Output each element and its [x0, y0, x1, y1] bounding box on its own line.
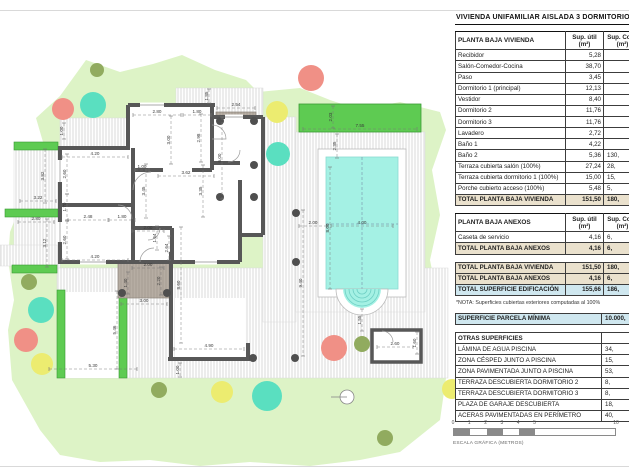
table-cell — [604, 61, 629, 72]
dim-label: 2.35 — [332, 141, 337, 150]
column — [291, 354, 299, 362]
tree — [52, 98, 74, 120]
table-row: PLANTA BAJA ANEXOSSup. útil (m²)Sup. Con… — [456, 214, 629, 232]
planter-strip — [12, 265, 57, 273]
table-cell: 6, — [604, 232, 629, 243]
table-row: TERRAZA DESCUBIERTA DORMITORIO 38, — [456, 388, 629, 399]
table-row: Baño 25,36130, — [456, 150, 629, 161]
house-room — [128, 105, 215, 170]
table-cell — [604, 50, 629, 61]
dim-label: 1.70 — [62, 202, 67, 211]
table-row: LÁMINA DE AGUA PISCINA34, — [456, 344, 629, 355]
dim-label: 3.00 — [166, 135, 171, 144]
table-cell — [604, 105, 629, 116]
scale-tick: 4 — [517, 420, 520, 426]
dim-label: 2.48 — [84, 214, 93, 219]
dim-label: 4.00 — [358, 220, 367, 225]
table-cell: LÁMINA DE AGUA PISCINA — [456, 344, 602, 355]
dim-label: 1.60 — [412, 338, 417, 347]
table-cell: 18, — [602, 399, 629, 410]
table-cell: Lavadero — [456, 128, 566, 139]
table-cell: 130, — [604, 150, 629, 161]
table-cell: 6, — [604, 273, 629, 284]
table-cell: 34, — [602, 344, 629, 355]
data-table: OTRAS SUPERFICIESLÁMINA DE AGUA PISCINA3… — [455, 332, 629, 422]
table-row: Dormitorio 211,76 — [456, 105, 629, 116]
scale-tick: 3 — [501, 420, 504, 426]
table-cell: 15, — [602, 355, 629, 366]
dim-label: 4.20 — [91, 151, 100, 156]
scale-tick: 5 — [533, 420, 536, 426]
dim-label: 4.20 — [91, 254, 100, 259]
tree — [252, 381, 282, 411]
table-cell: SUPERFICIE PARCELA MÍNIMA — [456, 313, 602, 324]
column — [292, 258, 300, 266]
table-cell: 4,16 — [566, 243, 604, 254]
scale-bar — [453, 428, 616, 436]
scale-segment — [519, 429, 535, 435]
table-cell: ZONA PAVIMENTADA JUNTO A PISCINA — [456, 366, 602, 377]
table-row: PLAZA DE GARAJE DESCUBIERTA18, — [456, 399, 629, 410]
column — [250, 117, 258, 125]
table-cell: TOTAL PLANTA BAJA VIVIENDA — [456, 262, 566, 273]
column — [292, 209, 300, 217]
table-cell: Recibidor — [456, 50, 566, 61]
table-cell: TOTAL PLANTA BAJA VIVIENDA — [456, 194, 566, 205]
table-row: Terraza cubierta dormitorio 1 (100%)15,0… — [456, 172, 629, 183]
dim-label: 2.03 — [328, 112, 333, 121]
table-cell: 38,70 — [566, 61, 604, 72]
column — [163, 289, 171, 297]
table-row: Caseta de servicio4,166, — [456, 232, 629, 243]
table-cell: Sup. útil (m²) — [566, 214, 604, 232]
table-cell: 3,45 — [566, 72, 604, 83]
tree — [14, 328, 38, 352]
scale-tick: 1 — [468, 420, 471, 426]
table-row: PLANTA BAJA VIVIENDASup. útil (m²)Sup. C… — [456, 32, 629, 50]
table-cell: 11,76 — [566, 117, 604, 128]
planter-strip — [57, 290, 65, 378]
table-cell: 6, — [604, 243, 629, 254]
garage-court — [175, 298, 245, 359]
dim-label: 1.00 — [175, 365, 180, 374]
table-cell — [604, 94, 629, 105]
scale-segment — [487, 429, 503, 435]
table-row: Paso3,45 — [456, 72, 629, 83]
planter-strip — [119, 295, 127, 378]
table-cell: 4,22 — [566, 139, 604, 150]
dim-label: 1.40 — [123, 278, 128, 287]
dim-label: 2.60 — [62, 235, 67, 244]
column — [118, 289, 126, 297]
planter-strip — [14, 142, 58, 150]
house-room — [133, 170, 240, 262]
tree — [211, 381, 233, 403]
table-cell: Baño 2 — [456, 150, 566, 161]
table-row: Vestidor8,40 — [456, 94, 629, 105]
data-table: SUPERFICIE PARCELA MÍNIMA10.000, — [455, 313, 629, 325]
column — [250, 161, 258, 169]
table-cell: TOTAL SUPERFICIE EDIFICACIÓN — [456, 284, 566, 295]
table-cell: Terraza cubierta salón (100%) — [456, 161, 566, 172]
table-cell: PLANTA BAJA ANEXOS — [456, 214, 566, 232]
table-cell: Sup. Cons (m²) — [604, 214, 629, 232]
table-cell: Porche cubierto acceso (100%) — [456, 183, 566, 194]
dim-label: 5.46 — [112, 325, 117, 334]
dim-label: 8.00 — [325, 223, 330, 232]
table-cell: 8, — [602, 388, 629, 399]
dim-label: 9.40 — [298, 278, 303, 287]
tree — [80, 92, 106, 118]
table-cell: PLANTA BAJA VIVIENDA — [456, 32, 566, 50]
dim-label: 5.30 — [89, 363, 98, 368]
drawing-sheet: 1.002.801.803.002.981.852.546.004.202.60… — [0, 0, 629, 476]
table-row: TOTAL SUPERFICIE EDIFICACIÓN155,66186, — [456, 284, 629, 295]
table-cell: Salón-Comedor-Cocina — [456, 61, 566, 72]
table-cell: OTRAS SUPERFICIES — [456, 333, 602, 344]
tree — [298, 65, 324, 91]
table-cell: 12,13 — [566, 83, 604, 94]
data-table: PLANTA BAJA VIVIENDASup. útil (m²)Sup. C… — [455, 31, 629, 206]
dim-label: 1.85 — [204, 91, 209, 100]
dim-label: 2.00 — [144, 225, 153, 230]
nota-text: *NOTA: Superficies cubiertas exteriores … — [456, 300, 629, 306]
dim-label: 3.22 — [34, 195, 43, 200]
scale-label: ESCALA GRÁFICA (METROS) — [453, 441, 524, 446]
table-cell: 186, — [604, 284, 629, 295]
otras-superficies-table: OTRAS SUPERFICIESLÁMINA DE AGUA PISCINA3… — [455, 332, 629, 422]
table-cell: 151,50 — [566, 194, 604, 205]
table-cell: 4,16 — [566, 273, 604, 284]
table-cell: Sup. Cons (m²) — [604, 32, 629, 50]
tree — [28, 297, 54, 323]
table-cell — [604, 72, 629, 83]
table-row: Dormitorio 1 (principal)12,13 — [456, 83, 629, 94]
column — [250, 193, 258, 201]
graphic-scale: ESCALA GRÁFICA (METROS) 01234510 — [453, 420, 629, 454]
table-cell: Terraza cubierta dormitorio 1 (100%) — [456, 172, 566, 183]
dim-label: 1.80 — [193, 109, 202, 114]
dim-label: 8.60 — [176, 280, 181, 289]
planta-baja-anexos-table: PLANTA BAJA ANEXOSSup. útil (m²)Sup. Con… — [455, 213, 629, 255]
site-plan: 1.002.801.803.002.981.852.546.004.202.60… — [0, 10, 455, 466]
table-cell: PLAZA DE GARAJE DESCUBIERTA — [456, 399, 602, 410]
table-cell: 151,50 — [566, 262, 604, 273]
table-row: Terraza cubierta salón (100%)27,2428, — [456, 161, 629, 172]
table-cell: 15,00 — [566, 172, 604, 183]
tree — [354, 336, 370, 352]
data-table: PLANTA BAJA ANEXOSSup. útil (m²)Sup. Con… — [455, 213, 629, 255]
table-cell: 2,72 — [566, 128, 604, 139]
tree — [151, 382, 167, 398]
table-cell: 8,40 — [566, 94, 604, 105]
table-cell: 53, — [602, 366, 629, 377]
table-cell: 28, — [604, 161, 629, 172]
dim-label: 3.45 — [141, 186, 146, 195]
dim-label: 1.55 — [357, 315, 362, 324]
table-cell: Vestidor — [456, 94, 566, 105]
tree — [21, 274, 37, 290]
tree — [266, 101, 288, 123]
table-cell: Dormitorio 2 — [456, 105, 566, 116]
dim-label: 2.20 — [156, 276, 161, 285]
table-cell: 155,66 — [566, 284, 604, 295]
table-row: Porche cubierto acceso (100%)5,485, — [456, 183, 629, 194]
table-cell: 180, — [604, 194, 629, 205]
table-row: Lavadero2,72 — [456, 128, 629, 139]
table-row: SUPERFICIE PARCELA MÍNIMA10.000, — [456, 313, 629, 324]
table-cell — [604, 128, 629, 139]
data-table: TOTAL PLANTA BAJA VIVIENDA151,50180,TOTA… — [455, 262, 629, 296]
table-cell: 15, — [604, 172, 629, 183]
summary-panel: VIVIENDA UNIFAMILIAR AISLADA 3 DORMITORI… — [455, 10, 629, 467]
tree — [321, 335, 347, 361]
table-cell: 27,24 — [566, 161, 604, 172]
dim-label: 3.82 — [40, 171, 45, 180]
table-cell: TOTAL PLANTA BAJA ANEXOS — [456, 273, 566, 284]
table-cell: 5,28 — [566, 50, 604, 61]
table-row: Salón-Comedor-Cocina38,70 — [456, 61, 629, 72]
dim-label: 1.64 — [152, 233, 157, 242]
table-cell: TERRAZA DESCUBIERTA DORMITORIO 3 — [456, 388, 602, 399]
table-cell: 11,76 — [566, 105, 604, 116]
dim-label: 1.00 — [138, 164, 147, 169]
table-cell: Caseta de servicio — [456, 232, 566, 243]
table-row: OTRAS SUPERFICIES — [456, 333, 629, 344]
dim-label: 2.00 — [309, 220, 318, 225]
table-cell: TERRAZA DESCUBIERTA DORMITORIO 2 — [456, 377, 602, 388]
table-row: Recibidor5,28 — [456, 50, 629, 61]
scale-segment — [454, 429, 470, 435]
table-cell: Dormitorio 1 (principal) — [456, 83, 566, 94]
scale-tick: 2 — [484, 420, 487, 426]
dim-label: 7.55 — [356, 123, 365, 128]
tree — [31, 353, 53, 375]
table-cell: Paso — [456, 72, 566, 83]
tree — [266, 142, 290, 166]
column — [216, 117, 224, 125]
table-cell: 5, — [604, 183, 629, 194]
dim-label: 3.12 — [42, 238, 47, 247]
table-cell: 4,16 — [566, 232, 604, 243]
dim-label: 2.98 — [196, 133, 201, 142]
dim-label: 6.00 — [217, 153, 222, 162]
parcela-minima-table: SUPERFICIE PARCELA MÍNIMA10.000, — [455, 313, 629, 325]
dim-label: 1.80 — [118, 214, 127, 219]
table-row: TOTAL PLANTA BAJA ANEXOS4,166, — [456, 243, 629, 254]
table-row: TOTAL PLANTA BAJA VIVIENDA151,50180, — [456, 262, 629, 273]
dim-label: 2.60 — [62, 169, 67, 178]
table-cell — [604, 83, 629, 94]
table-cell — [602, 333, 629, 344]
paved-deck — [0, 245, 57, 266]
dim-label: 2.00 — [144, 262, 153, 267]
table-cell — [604, 139, 629, 150]
dim-label: 3.62 — [182, 170, 191, 175]
tree — [377, 430, 393, 446]
table-row: TERRAZA DESCUBIERTA DORMITORIO 28, — [456, 377, 629, 388]
column — [249, 354, 257, 362]
resumen-table: TOTAL PLANTA BAJA VIVIENDA151,50180,TOTA… — [455, 262, 629, 296]
table-row: ZONA CÉSPED JUNTO A PISCINA15, — [456, 355, 629, 366]
table-cell: ZONA CÉSPED JUNTO A PISCINA — [456, 355, 602, 366]
table-row: Dormitorio 311,76 — [456, 117, 629, 128]
table-cell: 5,36 — [566, 150, 604, 161]
table-cell: 5,48 — [566, 183, 604, 194]
dim-label: 3.00 — [140, 298, 149, 303]
table-cell: 180, — [604, 262, 629, 273]
dim-label: 4.90 — [205, 343, 214, 348]
dim-label: 3.35 — [198, 186, 203, 195]
dim-label: 2.60 — [391, 341, 400, 346]
table-cell: Sup. útil (m²) — [566, 32, 604, 50]
table-row: TOTAL PLANTA BAJA ANEXOS4,166, — [456, 273, 629, 284]
table-row: Baño 14,22 — [456, 139, 629, 150]
table-cell: TOTAL PLANTA BAJA ANEXOS — [456, 243, 566, 254]
table-row: ZONA PAVIMENTADA JUNTO A PISCINA53, — [456, 366, 629, 377]
column — [216, 193, 224, 201]
table-cell — [604, 117, 629, 128]
table-cell: Baño 1 — [456, 139, 566, 150]
dim-label: 2.80 — [153, 109, 162, 114]
scale-tick: 10 — [613, 420, 619, 426]
dim-label: 2.80 — [32, 216, 41, 221]
table-row: TOTAL PLANTA BAJA VIVIENDA151,50180, — [456, 194, 629, 205]
table-cell: 8, — [602, 377, 629, 388]
dim-label: 1.00 — [59, 126, 64, 135]
dim-label: 2.64 — [164, 243, 169, 252]
tree — [90, 63, 104, 77]
planta-baja-vivienda-table: PLANTA BAJA VIVIENDASup. útil (m²)Sup. C… — [455, 31, 629, 206]
dim-label: 2.54 — [232, 102, 241, 107]
page-title: VIVIENDA UNIFAMILIAR AISLADA 3 DORMITORI… — [455, 10, 629, 25]
scale-tick: 0 — [452, 420, 455, 426]
table-cell: Dormitorio 3 — [456, 117, 566, 128]
table-cell: 10.000, — [602, 313, 629, 324]
